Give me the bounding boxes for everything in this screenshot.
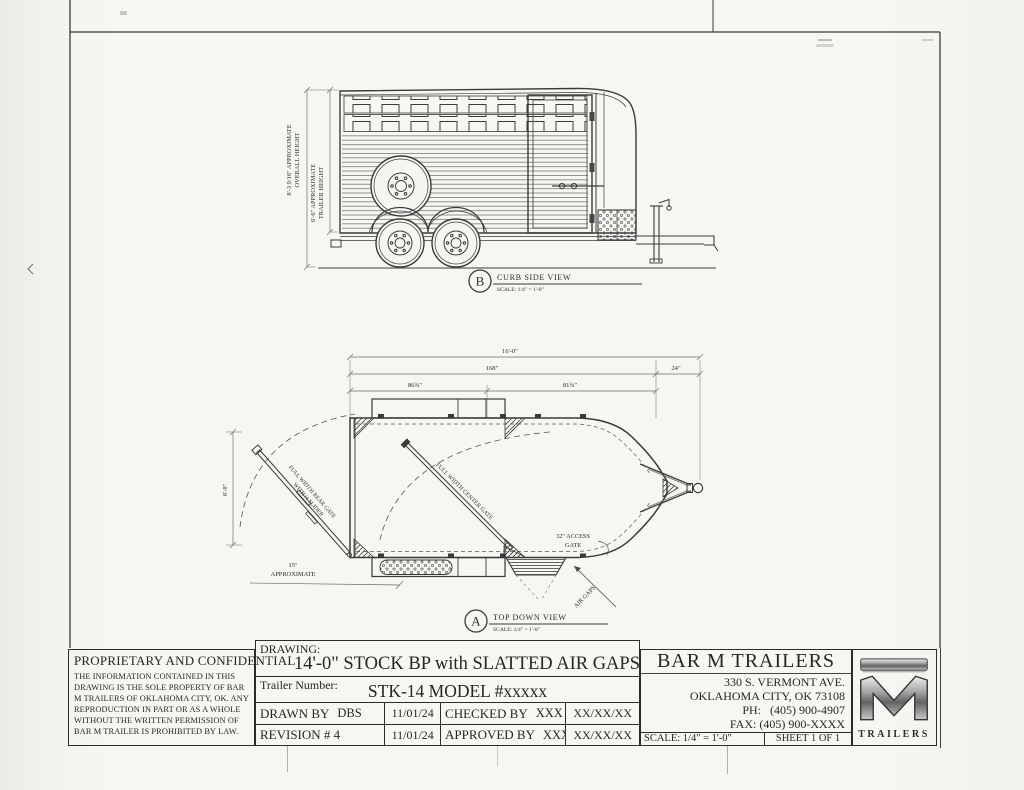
approved-by-value: XXX xyxy=(543,728,566,743)
top-view-title: TOP DOWN VIEW xyxy=(493,613,567,622)
proprietary-notice: PROPRIETARY AND CONFIDENTIAL THE INFORMA… xyxy=(68,649,255,746)
dim-rear-approx-word: APPROXIMATE xyxy=(271,571,316,578)
logo-bar xyxy=(861,659,928,671)
wheel-well-top xyxy=(354,399,525,438)
checked-by-value: XXX xyxy=(536,706,563,721)
view-marker-a: A TOP DOWN VIEW SCALE: 1/4" = 1'-0" xyxy=(465,610,608,633)
phone-value: (405) 900-4907 xyxy=(770,703,845,717)
proprietary-body: THE INFORMATION CONTAINED IN THIS DRAWIN… xyxy=(74,672,249,738)
dim-rear-approx-value: 15" xyxy=(289,562,298,569)
overall-height-label-1: 8'-3 9/16" APPROXIMATE xyxy=(286,124,293,195)
access-gate-label-1: 32" ACCESS xyxy=(556,533,590,540)
tongue-and-jack xyxy=(636,200,718,264)
view-marker-a-letter: A xyxy=(471,614,481,629)
logo-m xyxy=(861,676,928,719)
fold-mark-1 xyxy=(287,746,288,772)
company-address-2: OKLAHOMA CITY, OK 73108 xyxy=(641,689,845,703)
revision: REVISION # 4 xyxy=(260,727,340,743)
side-view-scale: SCALE: 1/4" = 1'-0" xyxy=(497,287,544,293)
fold-mark-2 xyxy=(497,746,498,766)
approved-by-label: APPROVED BY xyxy=(445,727,535,743)
right-border-lower xyxy=(940,648,941,748)
tongue-plan xyxy=(640,464,703,512)
drawn-by-value: DBS xyxy=(337,706,361,721)
drawing-title: 14'-0" STOCK BP with SLATTED AIR GAPS xyxy=(294,654,637,675)
fold-mark-3 xyxy=(727,746,728,774)
drawing-info-block: DRAWING: 14'-0" STOCK BP with SLATTED AI… xyxy=(255,640,640,746)
center-gate-label: FULL WIDTH CENTER GATE xyxy=(434,462,494,522)
access-gate-label-2: GATE xyxy=(565,542,581,549)
curb-side-view: 8'-3 9/16" APPROXIMATE OVERALL HEIGHT 6'… xyxy=(286,87,718,293)
scan-smudge xyxy=(816,44,834,47)
center-gate-swing-arc xyxy=(380,432,550,540)
dim-overall-length: 16'-0" xyxy=(502,348,518,355)
approved-date: XX/XX/XX xyxy=(573,728,632,743)
sheet-number: SHEET 1 OF 1 xyxy=(765,733,851,745)
dim-box-length: 168" xyxy=(486,365,499,372)
trailer-height-label-2: TRAILER HEIGHT xyxy=(318,167,325,219)
view-marker-b: B CURB SIDE VIEW SCALE: 1/4" = 1'-0" xyxy=(469,270,642,293)
air-gaps-label: AIR GAPS xyxy=(573,584,598,609)
dim-front-section: 81¾" xyxy=(563,382,578,389)
dim-tongue-length: 24" xyxy=(671,365,681,372)
dim-width: 6'-8" xyxy=(222,483,229,496)
top-view-scale: SCALE: 1/4" = 1'-0" xyxy=(493,627,540,633)
bar-m-logo-art: TRAILERS xyxy=(853,650,935,744)
drawn-by-label: DRAWN BY xyxy=(260,706,329,722)
company-address-1: 330 S. VERMONT AVE. xyxy=(641,675,845,689)
logo-text: TRAILERS xyxy=(858,729,930,740)
phone-label: PH: xyxy=(742,703,761,717)
view-marker-b-letter: B xyxy=(476,274,485,289)
drawn-date: 11/01/24 xyxy=(392,706,434,721)
company-block: BAR M TRAILERS 330 S. VERMONT AVE. OKLAH… xyxy=(640,649,852,746)
side-view-title: CURB SIDE VIEW xyxy=(497,273,571,282)
dim-rear-section: 86¾" xyxy=(408,382,423,389)
wheel-well-bottom xyxy=(354,539,525,577)
checked-date: XX/XX/XX xyxy=(573,706,632,721)
trailer-height-label-1: 6'-6" APPROXIMATE xyxy=(310,164,317,222)
drawing-area: 8'-3 9/16" APPROXIMATE OVERALL HEIGHT 6'… xyxy=(0,0,1024,648)
bar-m-logo: TRAILERS xyxy=(852,649,937,746)
company-name: BAR M TRAILERS xyxy=(641,650,851,674)
top-down-view: 16'-0" 168" 24" 86¾" 81¾" 6'-8" 15" APPR… xyxy=(222,348,703,633)
sheet-scale: SCALE: 1/4" = 1'-0" xyxy=(641,733,765,745)
rear-gate-open: FULL WIDTH REAR GATE WITH ½ SLIDER xyxy=(251,437,363,560)
coupler xyxy=(693,483,702,492)
proprietary-heading: PROPRIETARY AND CONFIDENTIAL xyxy=(74,653,249,669)
checked-by-label: CHECKED BY xyxy=(445,706,528,722)
revision-date: 11/01/24 xyxy=(392,728,434,743)
rear-gate-label-1: FULL WIDTH REAR GATE xyxy=(287,465,337,520)
air-gaps-callout: AIR GAPS xyxy=(573,566,616,609)
overall-height-label-2: OVERALL HEIGHT xyxy=(294,132,301,187)
fax-label: FAX: xyxy=(730,717,756,731)
drawing-sheet: 8'-3 9/16" APPROXIMATE OVERALL HEIGHT 6'… xyxy=(0,0,1024,790)
trailer-number: STK-14 MODEL #xxxxx xyxy=(316,681,599,702)
fax-value: (405) 900-XXXX xyxy=(759,717,845,731)
